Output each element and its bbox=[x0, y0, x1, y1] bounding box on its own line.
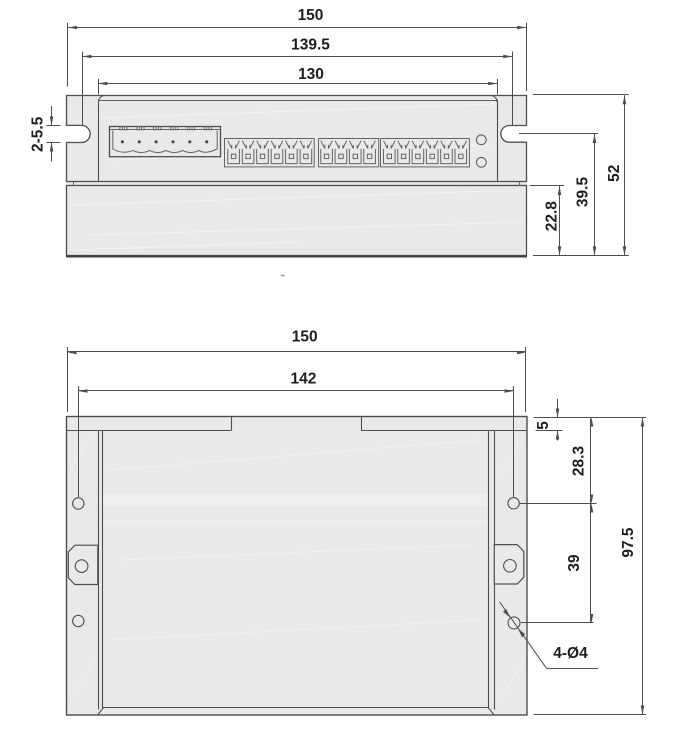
svg-text:139.5: 139.5 bbox=[291, 36, 330, 53]
svg-text:22.8: 22.8 bbox=[543, 201, 560, 232]
svg-text:150: 150 bbox=[298, 7, 324, 24]
svg-text:5: 5 bbox=[535, 421, 552, 430]
svg-text:39.5: 39.5 bbox=[575, 177, 592, 208]
svg-text:28.3: 28.3 bbox=[571, 446, 588, 477]
svg-text:39: 39 bbox=[566, 554, 583, 572]
svg-text:4-Ø4: 4-Ø4 bbox=[553, 645, 588, 662]
svg-text:2-5.5: 2-5.5 bbox=[29, 116, 46, 152]
svg-text:97.5: 97.5 bbox=[620, 527, 637, 558]
svg-text:142: 142 bbox=[290, 371, 316, 388]
svg-text:130: 130 bbox=[298, 66, 324, 83]
svg-text:150: 150 bbox=[292, 329, 318, 346]
svg-text:52: 52 bbox=[606, 165, 623, 182]
